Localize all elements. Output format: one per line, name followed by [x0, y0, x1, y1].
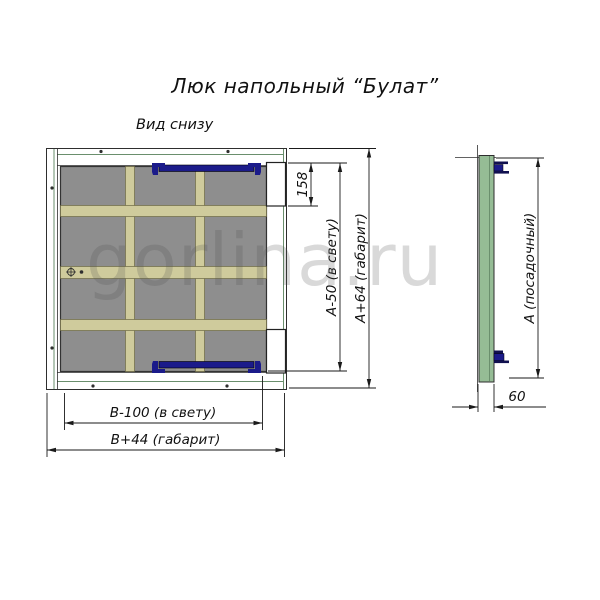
dim-label-profile-depth: 60 — [508, 389, 525, 405]
rivet-icon — [99, 150, 102, 153]
rivet-icon — [226, 150, 229, 153]
dim-label-clear-height: А-50 (в свету) — [324, 218, 340, 317]
rib-horizontal-1 — [61, 206, 267, 217]
drawing-canvas: Люк напольный “Булат” Вид снизу — [0, 0, 600, 600]
hinge-top-bar — [159, 165, 254, 172]
side-hinge-top — [494, 162, 509, 174]
side-profile — [479, 156, 494, 383]
side-view — [455, 145, 509, 392]
hinge-bottom-bar — [159, 362, 254, 369]
rib-horizontal-3 — [61, 320, 267, 331]
technical-drawing: 158 А-50 (в свету) А+64 (габарит) В-100 … — [0, 0, 600, 600]
rib-horizontal-2 — [61, 267, 267, 279]
dim-label-overall-width: В+44 (габарит) — [111, 432, 221, 448]
side-hinge-bottom — [494, 351, 509, 364]
rivet-icon — [225, 384, 228, 387]
rivet-icon — [50, 186, 53, 189]
rivet-icon — [50, 346, 53, 349]
dim-label-overall-height: А+64 (габарит) — [353, 213, 369, 324]
latch-plate-top — [267, 163, 286, 207]
dim-label-158: 158 — [295, 172, 311, 198]
dim-label-seating-height: А (посадочный) — [522, 213, 538, 325]
dim-label-clear-width: В-100 (в свету) — [110, 405, 217, 421]
main-view — [47, 149, 288, 390]
rivet-icon — [91, 384, 94, 387]
latch-plate-bottom — [267, 330, 286, 374]
